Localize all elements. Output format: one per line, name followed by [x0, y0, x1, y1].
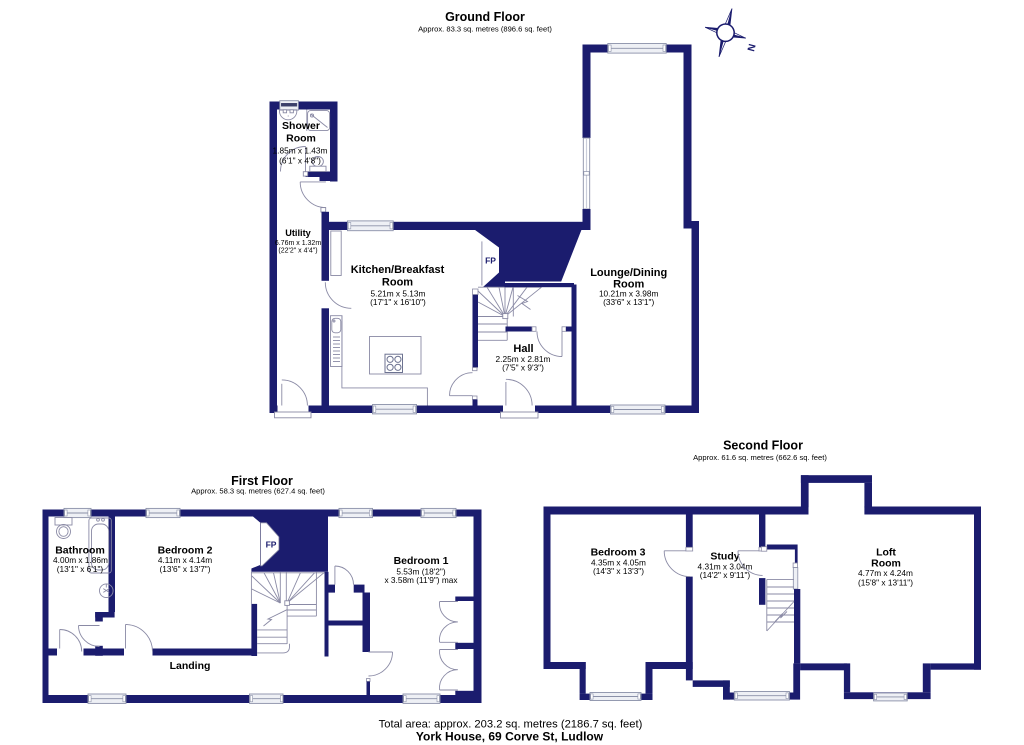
- svg-text:Approx. 58.3 sq. metres (627.4: Approx. 58.3 sq. metres (627.4 sq. feet): [191, 487, 325, 496]
- svg-text:Shower: Shower: [282, 120, 320, 132]
- svg-text:1.85m x 1.43m: 1.85m x 1.43m: [273, 146, 328, 156]
- svg-text:(14'2" x 9'11"): (14'2" x 9'11"): [700, 570, 751, 580]
- svg-text:(17'1" x 16'10"): (17'1" x 16'10"): [370, 297, 426, 307]
- svg-text:Lounge/Dining: Lounge/Dining: [590, 267, 667, 279]
- svg-text:(15'8" x 13'11"): (15'8" x 13'11"): [858, 578, 913, 588]
- svg-text:(13'6" x 13'7"): (13'6" x 13'7"): [159, 564, 210, 574]
- svg-text:(6'1" x 4'8"): (6'1" x 4'8"): [279, 156, 321, 166]
- svg-text:Landing: Landing: [170, 660, 211, 672]
- svg-text:Kitchen/Breakfast: Kitchen/Breakfast: [351, 264, 445, 276]
- svg-text:(22'2" x 4'4"): (22'2" x 4'4"): [278, 248, 317, 255]
- svg-text:York House, 69 Corve St, Ludlo: York House, 69 Corve St, Ludlow: [416, 730, 604, 744]
- svg-text:Bedroom 1: Bedroom 1: [394, 555, 449, 567]
- svg-text:Ground Floor: Ground Floor: [445, 10, 525, 24]
- svg-text:FP: FP: [485, 256, 496, 266]
- svg-text:FP: FP: [266, 540, 277, 550]
- svg-text:4.77m x 4.24m: 4.77m x 4.24m: [858, 568, 913, 578]
- svg-text:(33'6" x 13'1"): (33'6" x 13'1"): [603, 297, 654, 307]
- svg-text:x 3.58m (11'9") max: x 3.58m (11'9") max: [384, 575, 458, 585]
- svg-text:(13'1" x 6'1"): (13'1" x 6'1"): [57, 564, 104, 574]
- svg-text:(14'3" x 13'3"): (14'3" x 13'3"): [593, 566, 644, 576]
- svg-text:6.76m x 1.32m: 6.76m x 1.32m: [275, 240, 321, 247]
- svg-text:(7'5" x 9'3"): (7'5" x 9'3"): [502, 363, 544, 373]
- svg-text:Utility: Utility: [285, 228, 311, 238]
- svg-text:Approx. 83.3 sq. metres (896.6: Approx. 83.3 sq. metres (896.6 sq. feet): [418, 24, 552, 33]
- svg-text:Second Floor: Second Floor: [723, 439, 803, 453]
- svg-text:Approx. 61.6 sq. metres (662.6: Approx. 61.6 sq. metres (662.6 sq. feet): [693, 453, 827, 462]
- svg-text:Room: Room: [286, 133, 316, 145]
- svg-text:Room: Room: [382, 277, 413, 289]
